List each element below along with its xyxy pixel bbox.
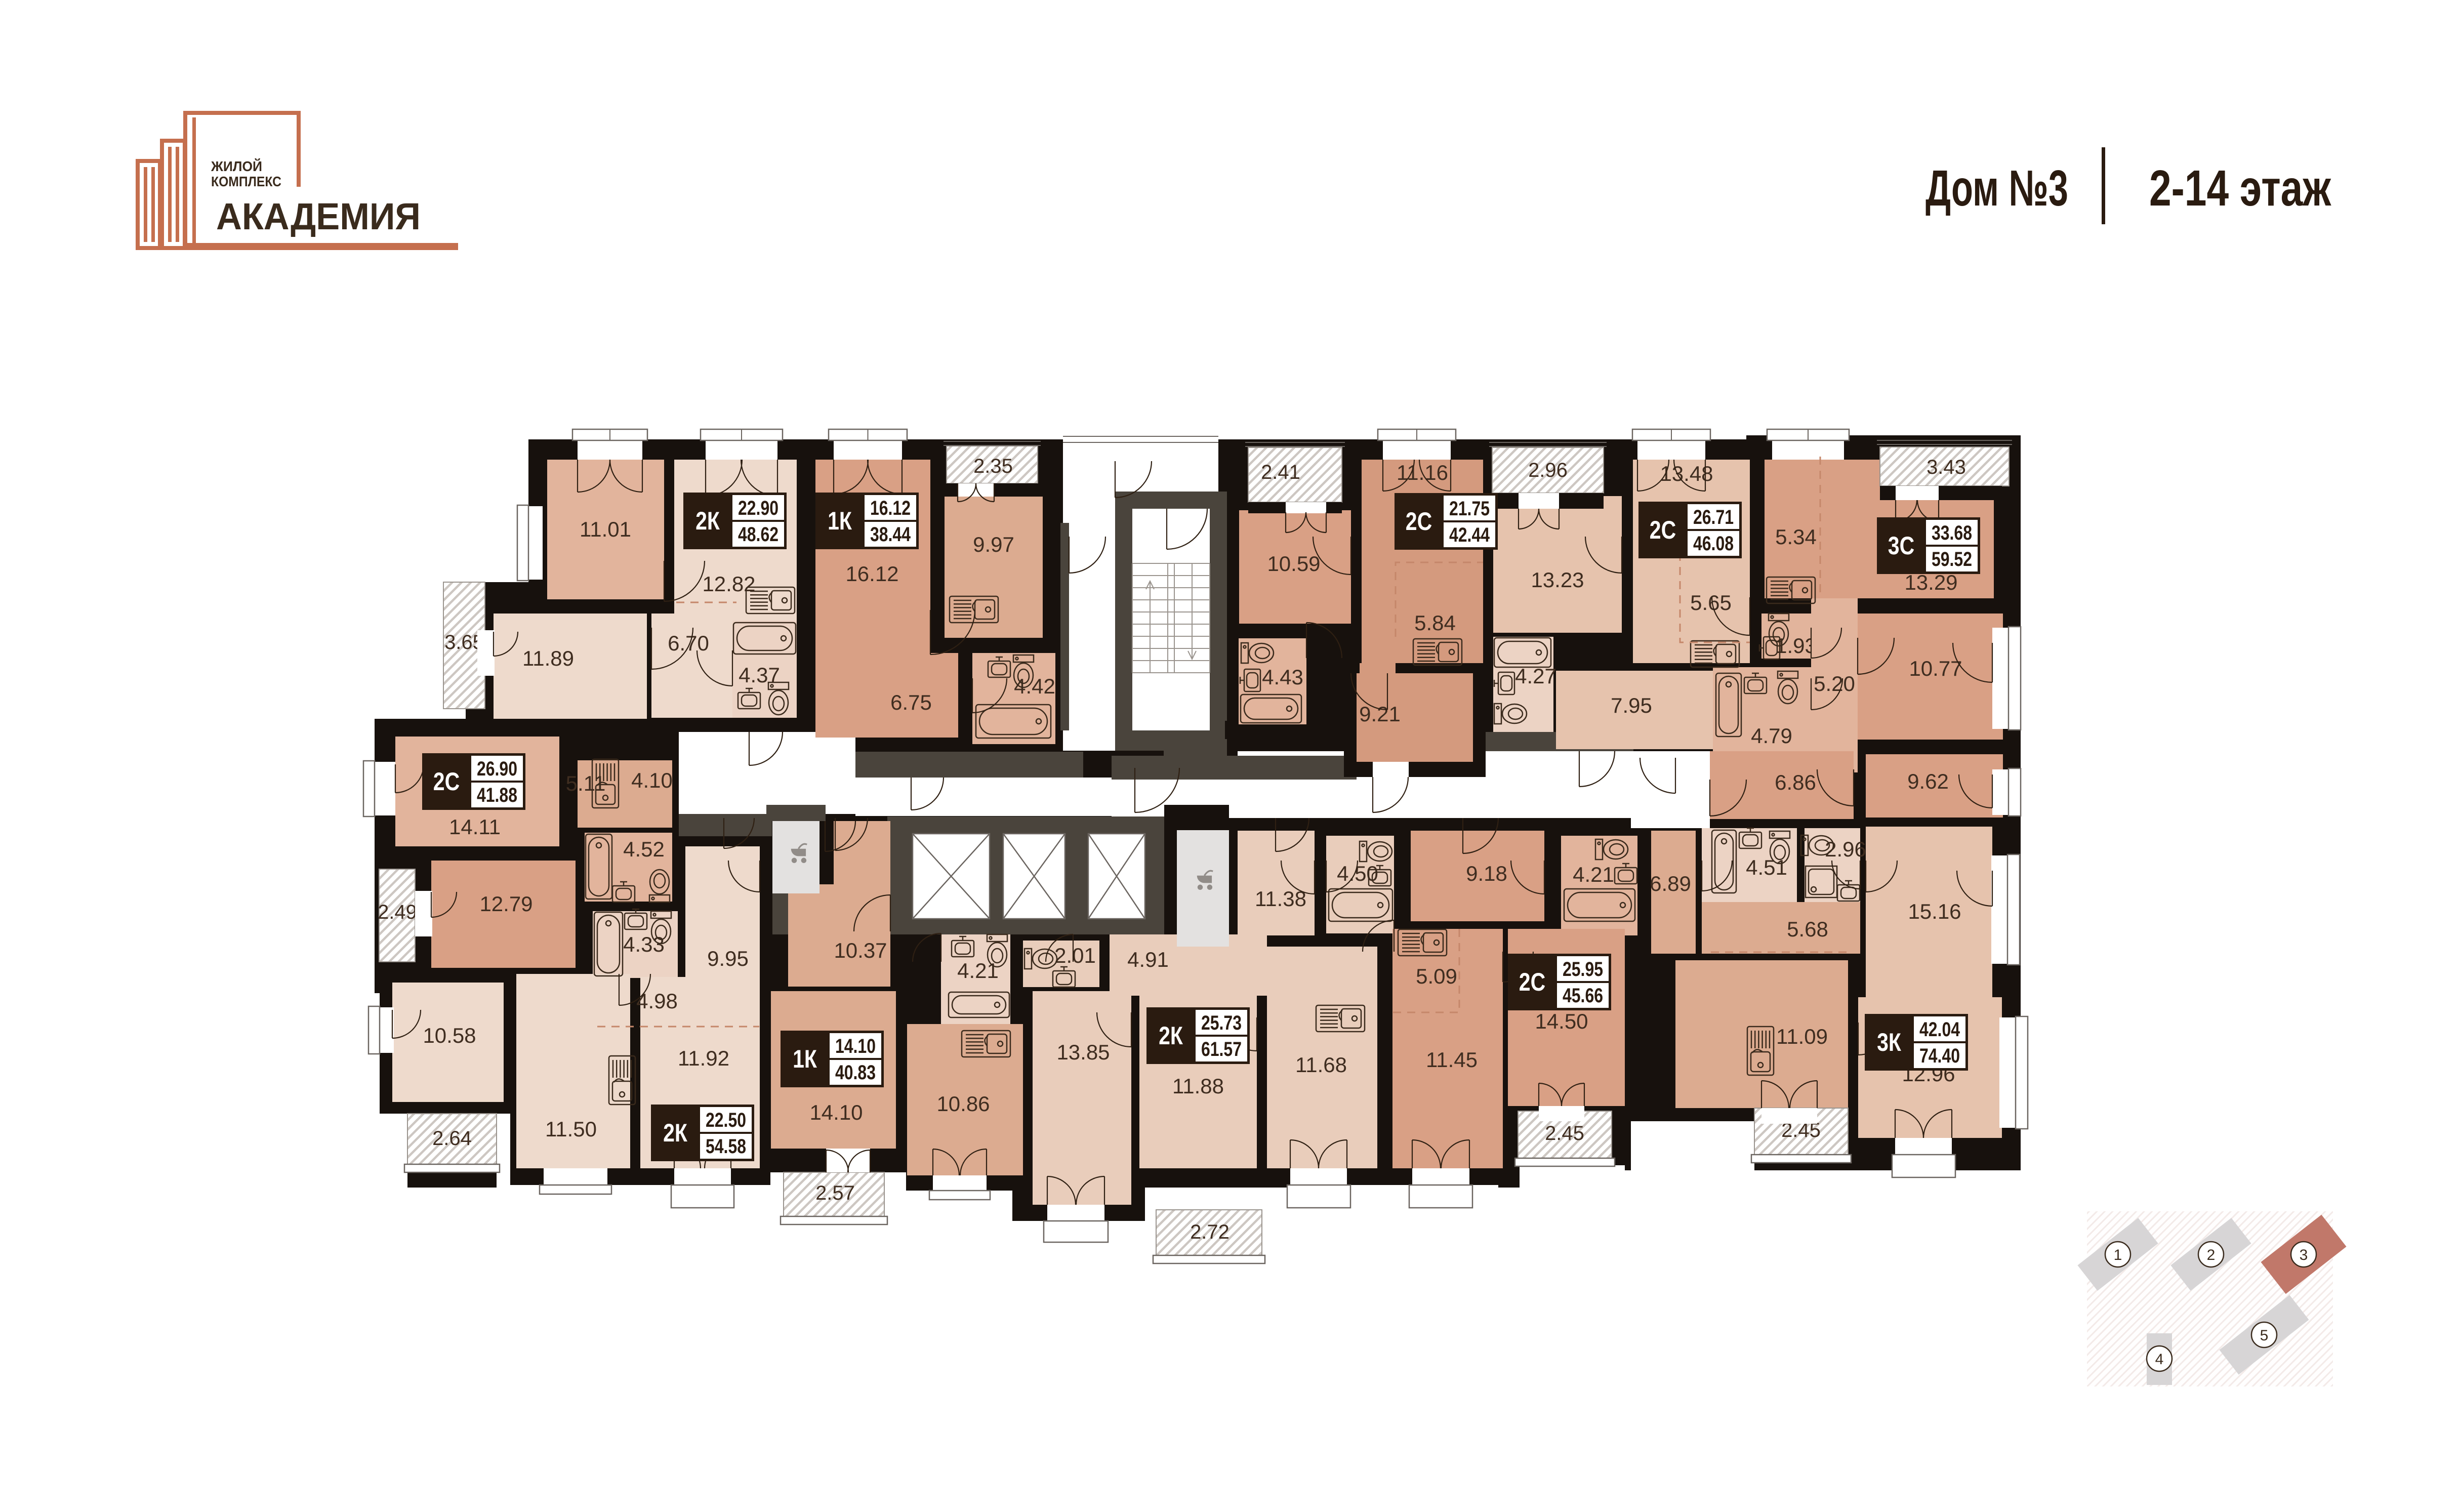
svg-text:4: 4 [2155, 1351, 2164, 1368]
svg-text:40.83: 40.83 [835, 1061, 876, 1084]
svg-text:2: 2 [2207, 1247, 2216, 1263]
svg-text:41.88: 41.88 [477, 784, 517, 806]
svg-text:21.75: 21.75 [1449, 497, 1490, 520]
svg-text:14.11: 14.11 [449, 815, 501, 839]
svg-text:10.59: 10.59 [1267, 552, 1320, 576]
svg-text:2-14 этаж: 2-14 этаж [2149, 160, 2331, 217]
svg-text:38.44: 38.44 [870, 523, 911, 546]
svg-text:14.50: 14.50 [1535, 1009, 1588, 1033]
svg-text:9.18: 9.18 [1466, 862, 1507, 885]
svg-text:3К: 3К [1877, 1028, 1901, 1056]
svg-text:14.10: 14.10 [835, 1035, 876, 1057]
svg-text:4.21: 4.21 [957, 959, 999, 983]
svg-text:5.68: 5.68 [1787, 917, 1828, 941]
svg-text:1: 1 [2114, 1247, 2122, 1263]
svg-text:5.65: 5.65 [1690, 591, 1732, 615]
svg-text:46.08: 46.08 [1693, 532, 1734, 555]
svg-text:5.84: 5.84 [1414, 611, 1456, 635]
svg-text:АКАДЕМИЯ: АКАДЕМИЯ [216, 195, 421, 237]
svg-text:6.89: 6.89 [1650, 872, 1691, 895]
svg-text:10.77: 10.77 [1909, 657, 1962, 680]
svg-text:4.98: 4.98 [636, 989, 678, 1013]
svg-text:6.75: 6.75 [890, 690, 932, 714]
svg-text:4.37: 4.37 [739, 663, 780, 687]
svg-text:9.21: 9.21 [1359, 702, 1401, 726]
svg-text:2.96: 2.96 [1825, 837, 1866, 861]
svg-text:4.10: 4.10 [631, 768, 673, 792]
svg-text:2С: 2С [1519, 968, 1545, 996]
svg-text:61.57: 61.57 [1201, 1038, 1242, 1060]
svg-text:11.88: 11.88 [1172, 1074, 1224, 1098]
svg-text:2С: 2С [1650, 516, 1676, 544]
svg-text:7.95: 7.95 [1611, 693, 1652, 717]
svg-text:26.71: 26.71 [1693, 506, 1734, 528]
svg-text:15.16: 15.16 [1908, 900, 1961, 923]
svg-text:25.73: 25.73 [1201, 1011, 1242, 1034]
svg-text:9.62: 9.62 [1907, 769, 1949, 793]
svg-text:10.58: 10.58 [423, 1024, 476, 1047]
svg-text:22.90: 22.90 [738, 497, 778, 519]
svg-text:5.34: 5.34 [1775, 525, 1817, 549]
svg-text:2К: 2К [1159, 1021, 1183, 1050]
svg-text:4.79: 4.79 [1751, 724, 1792, 748]
svg-text:42.04: 42.04 [1919, 1018, 1960, 1041]
svg-text:11.89: 11.89 [522, 646, 574, 670]
svg-text:74.40: 74.40 [1919, 1044, 1960, 1067]
svg-text:2С: 2С [1406, 507, 1432, 536]
svg-text:2К: 2К [695, 507, 720, 535]
svg-text:16.12: 16.12 [845, 562, 898, 586]
svg-text:10.86: 10.86 [936, 1092, 990, 1116]
svg-text:48.62: 48.62 [738, 523, 778, 546]
svg-text:33.68: 33.68 [1932, 521, 1972, 544]
svg-text:2.45: 2.45 [1545, 1122, 1584, 1145]
svg-text:16.12: 16.12 [870, 497, 911, 519]
svg-text:12.79: 12.79 [479, 892, 532, 916]
svg-text:4.91: 4.91 [1127, 948, 1169, 971]
svg-text:5: 5 [2260, 1327, 2269, 1344]
svg-text:11.09: 11.09 [1776, 1025, 1828, 1048]
svg-text:13.23: 13.23 [1531, 568, 1584, 592]
svg-text:1К: 1К [793, 1045, 817, 1073]
svg-text:10.37: 10.37 [834, 938, 887, 962]
svg-text:11.50: 11.50 [545, 1117, 597, 1141]
svg-text:3: 3 [2300, 1247, 2308, 1263]
svg-text:4.43: 4.43 [1262, 665, 1303, 689]
svg-text:6.86: 6.86 [1775, 770, 1816, 794]
svg-text:11.68: 11.68 [1295, 1053, 1347, 1077]
svg-text:2.01: 2.01 [1054, 944, 1096, 967]
svg-text:25.95: 25.95 [1563, 958, 1603, 980]
svg-text:12.82: 12.82 [702, 572, 755, 596]
svg-text:2.72: 2.72 [1190, 1221, 1229, 1243]
svg-text:ЖИЛОЙ: ЖИЛОЙ [211, 158, 262, 174]
svg-text:9.95: 9.95 [707, 947, 749, 970]
svg-text:54.58: 54.58 [706, 1135, 746, 1158]
svg-text:22.50: 22.50 [706, 1109, 746, 1131]
svg-text:5.09: 5.09 [1416, 964, 1457, 988]
svg-text:2.41: 2.41 [1261, 461, 1300, 483]
svg-text:2К: 2К [663, 1119, 687, 1147]
svg-text:2.35: 2.35 [973, 455, 1013, 477]
svg-text:3.43: 3.43 [1927, 456, 1966, 478]
svg-text:2.96: 2.96 [1528, 459, 1568, 481]
svg-text:4.33: 4.33 [623, 932, 665, 956]
svg-text:3С: 3С [1888, 532, 1914, 560]
svg-text:11.01: 11.01 [580, 517, 631, 541]
svg-text:2.64: 2.64 [432, 1127, 472, 1150]
svg-text:59.52: 59.52 [1932, 548, 1972, 570]
svg-text:42.44: 42.44 [1449, 523, 1490, 546]
svg-text:2.49: 2.49 [378, 901, 417, 923]
svg-text:45.66: 45.66 [1563, 984, 1603, 1007]
svg-text:11.45: 11.45 [1426, 1048, 1478, 1072]
svg-text:13.29: 13.29 [1904, 570, 1957, 594]
svg-text:9.97: 9.97 [973, 533, 1014, 556]
svg-text:26.90: 26.90 [477, 757, 517, 780]
svg-text:4.21: 4.21 [1573, 863, 1614, 886]
svg-text:2.57: 2.57 [815, 1182, 855, 1204]
svg-text:Дом №3: Дом №3 [1925, 160, 2068, 217]
svg-text:1К: 1К [828, 507, 852, 535]
svg-text:2С: 2С [433, 767, 460, 796]
svg-text:11.92: 11.92 [678, 1046, 729, 1070]
svg-text:6.70: 6.70 [668, 631, 709, 655]
svg-text:13.85: 13.85 [1056, 1040, 1110, 1064]
svg-text:4.52: 4.52 [623, 837, 665, 861]
svg-text:КОМПЛЕКС: КОМПЛЕКС [211, 174, 281, 189]
svg-text:14.10: 14.10 [809, 1100, 863, 1124]
